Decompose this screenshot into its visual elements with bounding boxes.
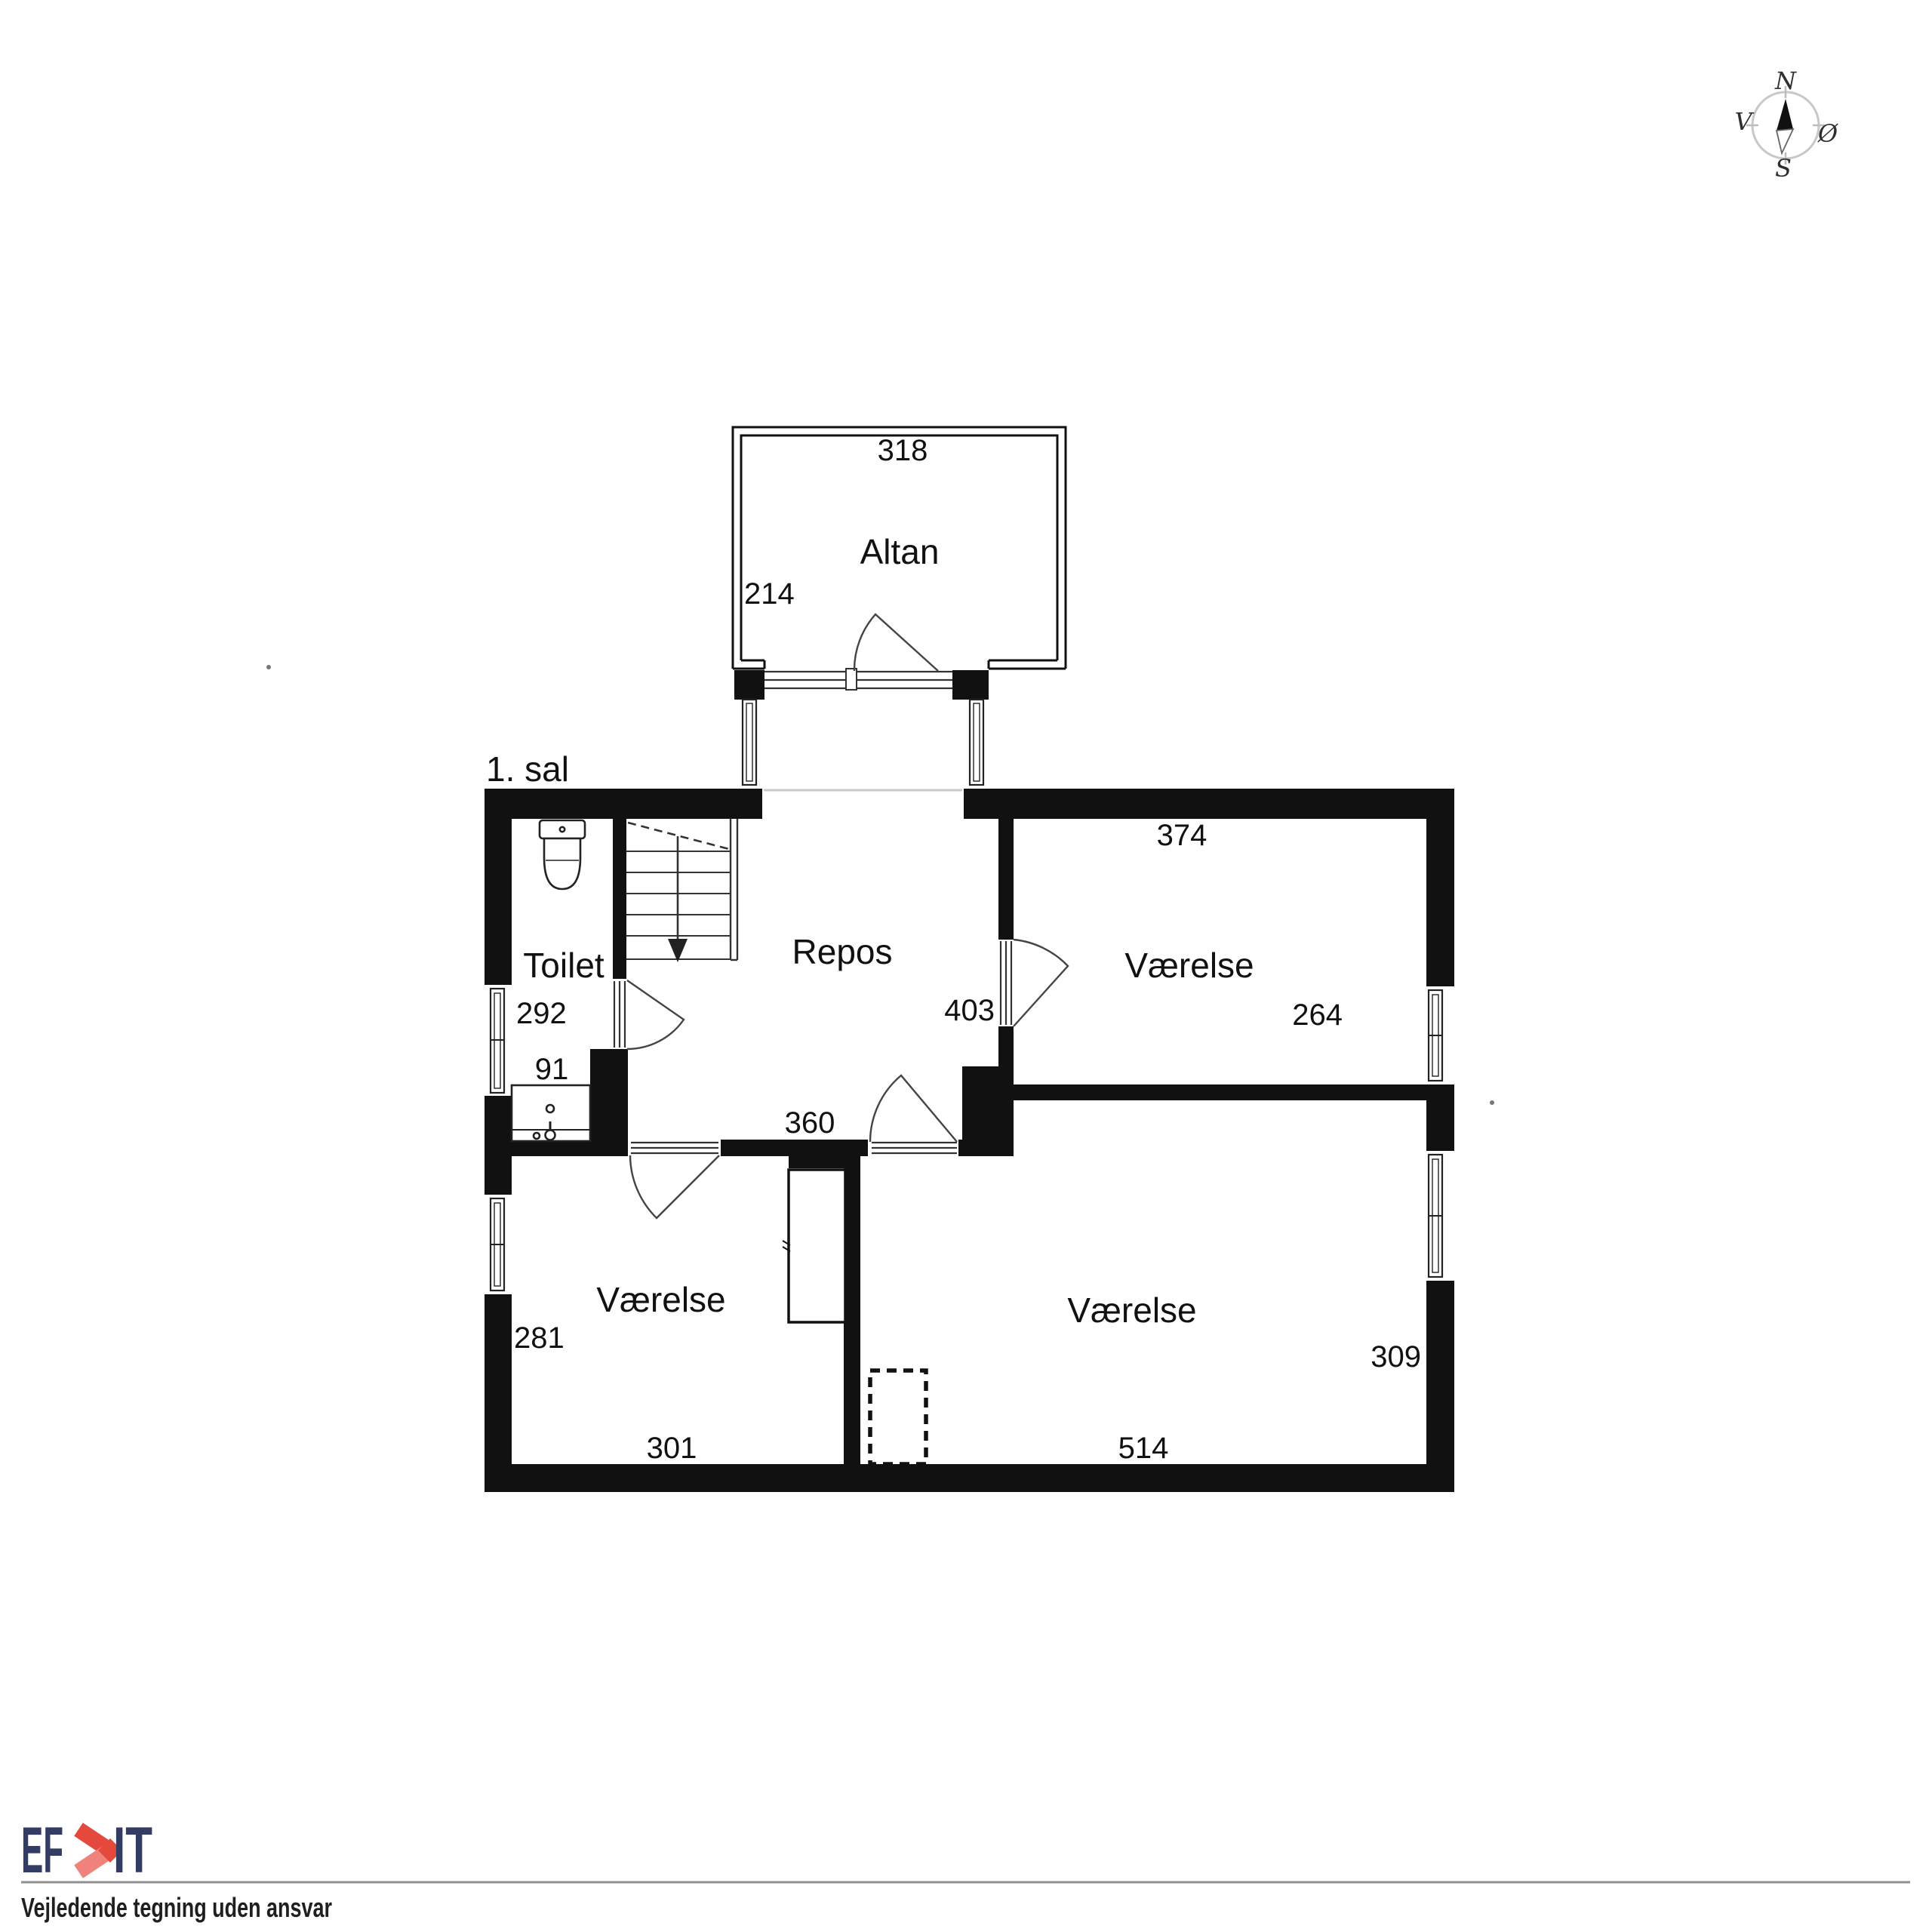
compass-label-v: V (1734, 107, 1754, 136)
wall (1426, 1281, 1454, 1492)
balcony-door (764, 614, 952, 690)
wall (485, 1464, 1454, 1492)
door-room-sw (630, 1143, 719, 1218)
sidelight-left (743, 700, 756, 785)
wall (1014, 1084, 1426, 1100)
logo-text-left: EF (21, 1814, 63, 1887)
dim-se-depth: 309 (1371, 1340, 1421, 1374)
sink-fixture (512, 1085, 590, 1141)
closet (783, 1170, 845, 1322)
room-label-altan: Altan (860, 532, 940, 571)
dim-ne-depth: 264 (1292, 998, 1343, 1032)
dim-repos-door: 403 (944, 994, 995, 1027)
sidelight-right (970, 700, 983, 785)
floorplan-svg: 1. sal Altan 318 214 Toilet 292 91 Repos… (0, 0, 1932, 1932)
dim-sw-width: 301 (647, 1432, 697, 1465)
window-room-sw-left (491, 1198, 504, 1291)
dim-altan-width: 318 (878, 434, 928, 467)
balcony-door-arc (854, 614, 938, 671)
room-label-toilet: Toilet (523, 946, 605, 985)
door-toilet (614, 980, 684, 1049)
staircase (626, 819, 737, 962)
footer-tagline: Vejledende tegning uden ansvar (21, 1892, 332, 1923)
wall (485, 789, 512, 985)
room-label-ne: Værelse (1124, 946, 1254, 985)
reference-dot (266, 665, 271, 669)
wc-toilet-fixture (540, 820, 585, 889)
floor-title: 1. sal (486, 749, 569, 789)
fixtures (266, 665, 1494, 1464)
dim-sw-depth: 281 (514, 1321, 565, 1355)
dim-ne-width: 374 (1157, 819, 1207, 852)
room-label-sw: Værelse (596, 1280, 725, 1319)
footer: EF IT Vejledende tegning uden ansvar (21, 1814, 1910, 1923)
wall (613, 819, 626, 979)
dim-repos-width: 360 (785, 1106, 835, 1140)
reference-dot (1490, 1100, 1494, 1105)
wall (485, 1140, 628, 1156)
wall (998, 819, 1014, 940)
window-room-ne-right (1429, 990, 1442, 1081)
wall (721, 1140, 868, 1156)
floorplan-page: 1. sal Altan 318 214 Toilet 292 91 Repos… (0, 0, 1932, 1932)
wall (1426, 1084, 1454, 1151)
compass-label-o: Ø (1817, 119, 1838, 148)
walls (485, 670, 1454, 1492)
room-label-repos: Repos (792, 932, 893, 971)
dim-toilet-depth: 292 (516, 997, 567, 1030)
dim-altan-depth: 214 (744, 577, 795, 611)
wall (590, 1049, 628, 1141)
compass-rose: N S V Ø (1734, 66, 1838, 183)
logo-text-right: IT (113, 1814, 152, 1887)
wall (789, 1155, 845, 1168)
window-room-se-right (1429, 1155, 1442, 1277)
wall (485, 789, 762, 819)
altan-post (734, 670, 764, 700)
dim-se-width: 514 (1118, 1432, 1169, 1465)
wall (1426, 789, 1454, 986)
compass-label-n: N (1774, 66, 1797, 95)
window-toilet-left (491, 989, 504, 1093)
room-label-se: Værelse (1067, 1291, 1196, 1330)
wall (485, 1294, 512, 1492)
compass-label-s: S (1775, 154, 1792, 183)
wall (998, 1026, 1014, 1079)
altan-post (952, 670, 989, 700)
chimney (870, 1371, 926, 1464)
door-room-se (870, 1075, 957, 1153)
dim-toilet-sink: 91 (535, 1053, 569, 1086)
door-room-ne (1001, 940, 1068, 1026)
wall (964, 789, 1454, 819)
compass-needle-north (1777, 99, 1793, 131)
wall (962, 1066, 1014, 1155)
compass-needle-south (1777, 129, 1793, 153)
